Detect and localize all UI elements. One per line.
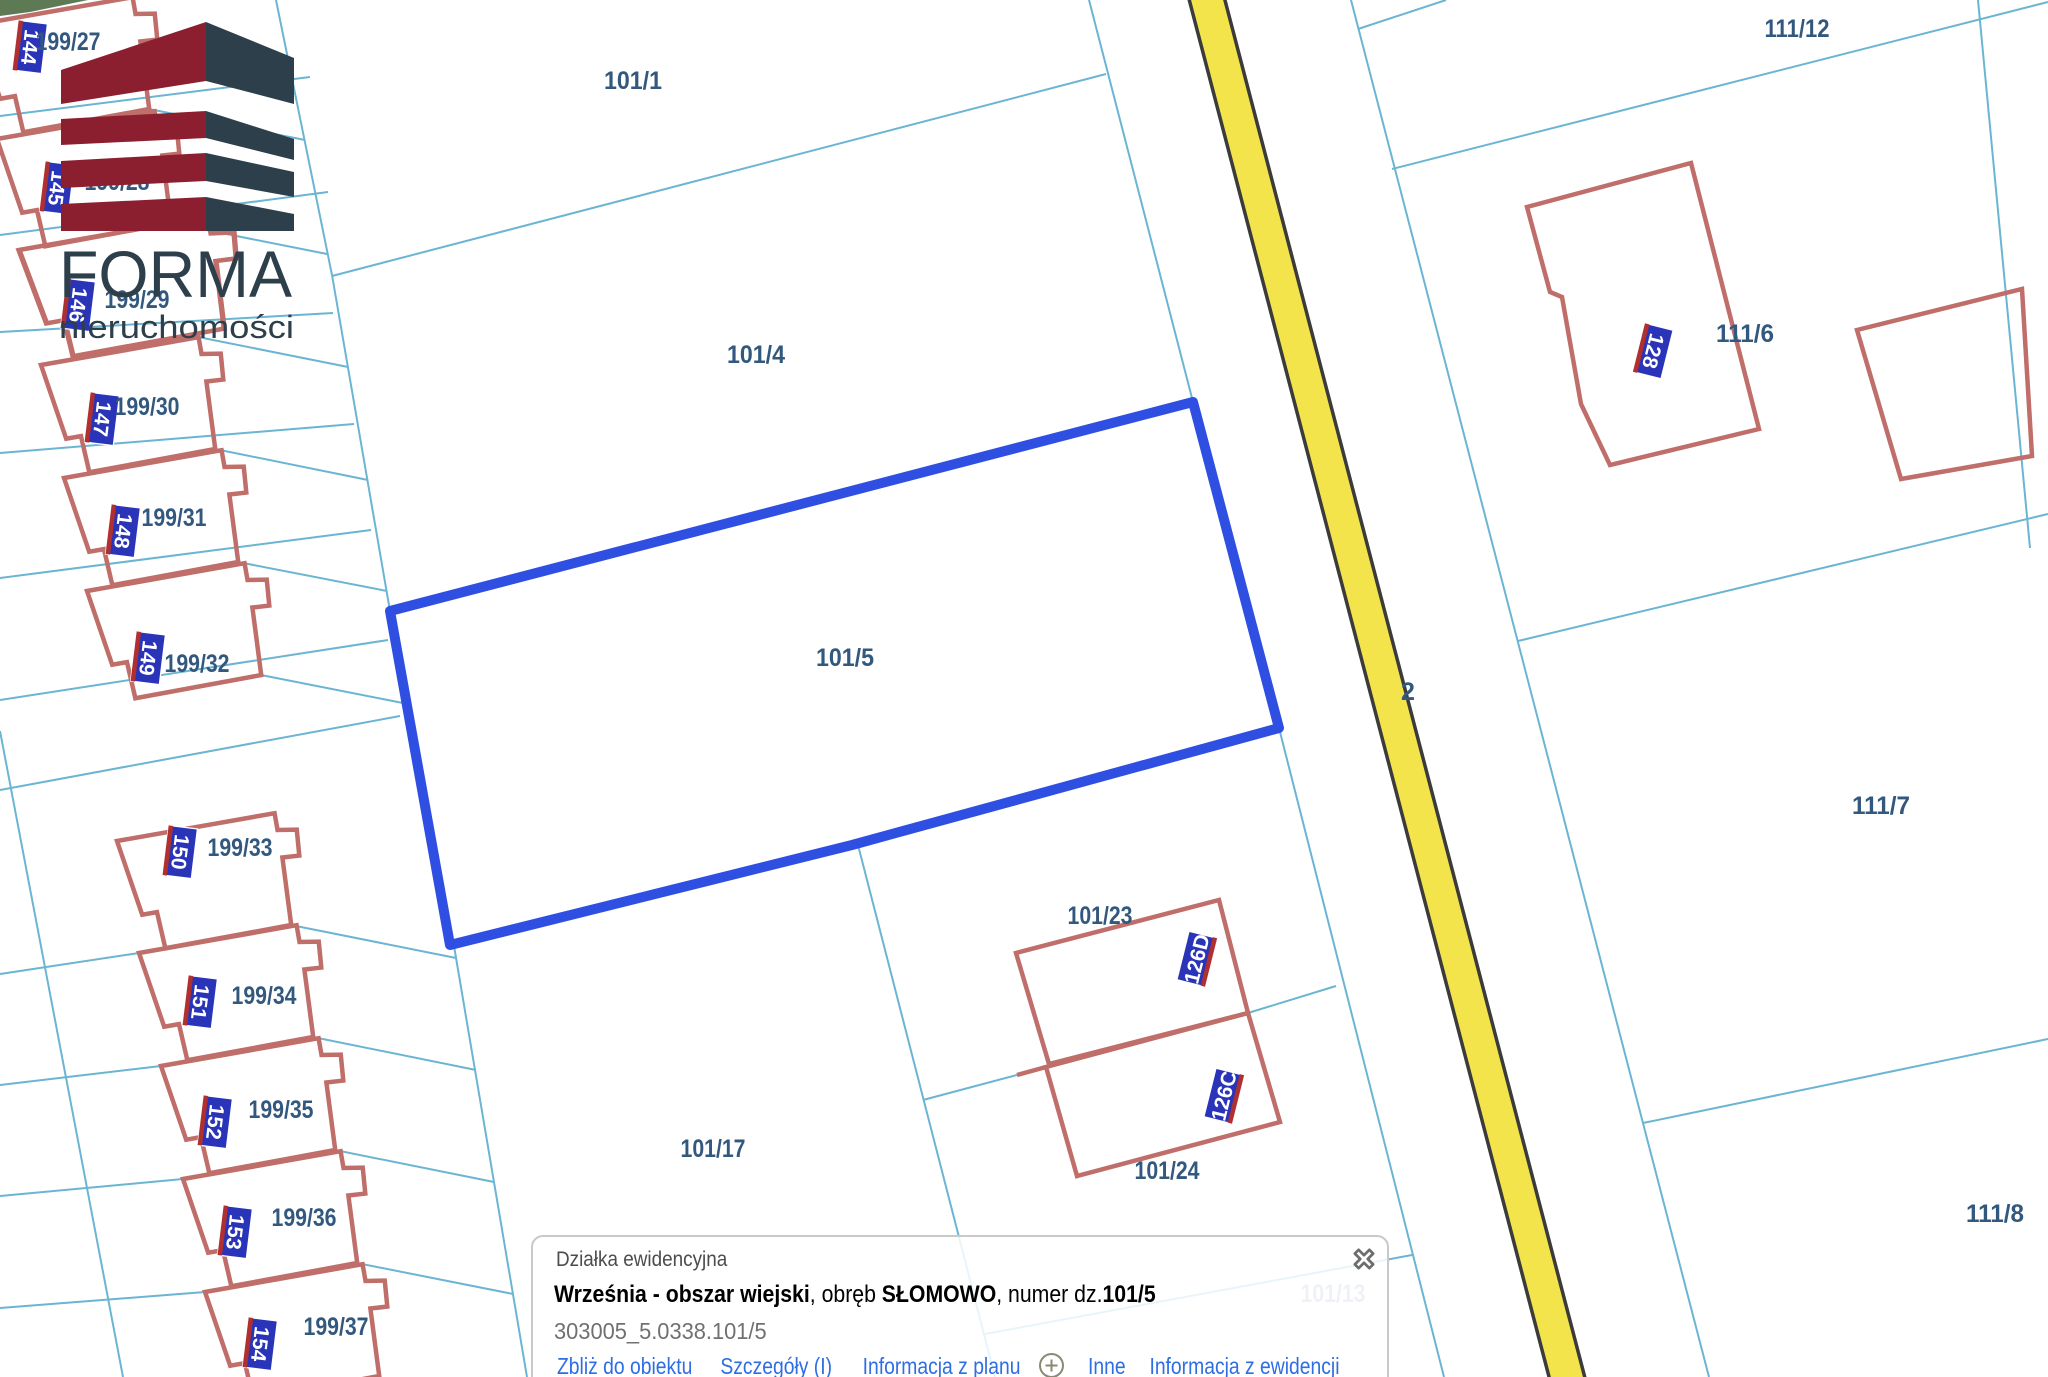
svg-text:199/32: 199/32 <box>165 650 230 678</box>
svg-text:149: 149 <box>134 639 161 677</box>
svg-text:147: 147 <box>88 400 115 438</box>
svg-text:199/34: 199/34 <box>232 982 297 1010</box>
svg-text:FORMA: FORMA <box>59 237 292 311</box>
svg-text:199/37: 199/37 <box>304 1313 369 1341</box>
svg-text:111/7: 111/7 <box>1852 792 1910 820</box>
svg-text:101/24: 101/24 <box>1135 1157 1200 1185</box>
svg-text:101/1: 101/1 <box>604 67 662 95</box>
svg-text:152: 152 <box>201 1103 228 1141</box>
svg-text:199/35: 199/35 <box>249 1096 314 1124</box>
svg-text:154: 154 <box>246 1325 273 1363</box>
svg-text:199/36: 199/36 <box>272 1204 337 1232</box>
svg-text:153: 153 <box>221 1213 248 1251</box>
svg-text:101/5: 101/5 <box>816 644 874 672</box>
svg-text:199/30: 199/30 <box>115 393 180 421</box>
svg-text:199/31: 199/31 <box>142 504 207 532</box>
svg-text:2: 2 <box>1401 678 1415 706</box>
svg-text:111/8: 111/8 <box>1966 1200 2024 1228</box>
svg-text:101/17: 101/17 <box>681 1135 746 1163</box>
svg-text:148: 148 <box>109 512 136 550</box>
svg-text:101/23: 101/23 <box>1068 902 1133 930</box>
svg-text:nieruchomości: nieruchomości <box>59 309 294 345</box>
svg-text:151: 151 <box>186 983 213 1021</box>
svg-text:150: 150 <box>166 833 193 871</box>
svg-text:111/12: 111/12 <box>1765 15 1830 43</box>
svg-text:101/4: 101/4 <box>727 341 785 369</box>
svg-text:199/33: 199/33 <box>208 834 273 862</box>
svg-text:199/27: 199/27 <box>36 28 101 56</box>
svg-text:111/6: 111/6 <box>1716 320 1774 348</box>
